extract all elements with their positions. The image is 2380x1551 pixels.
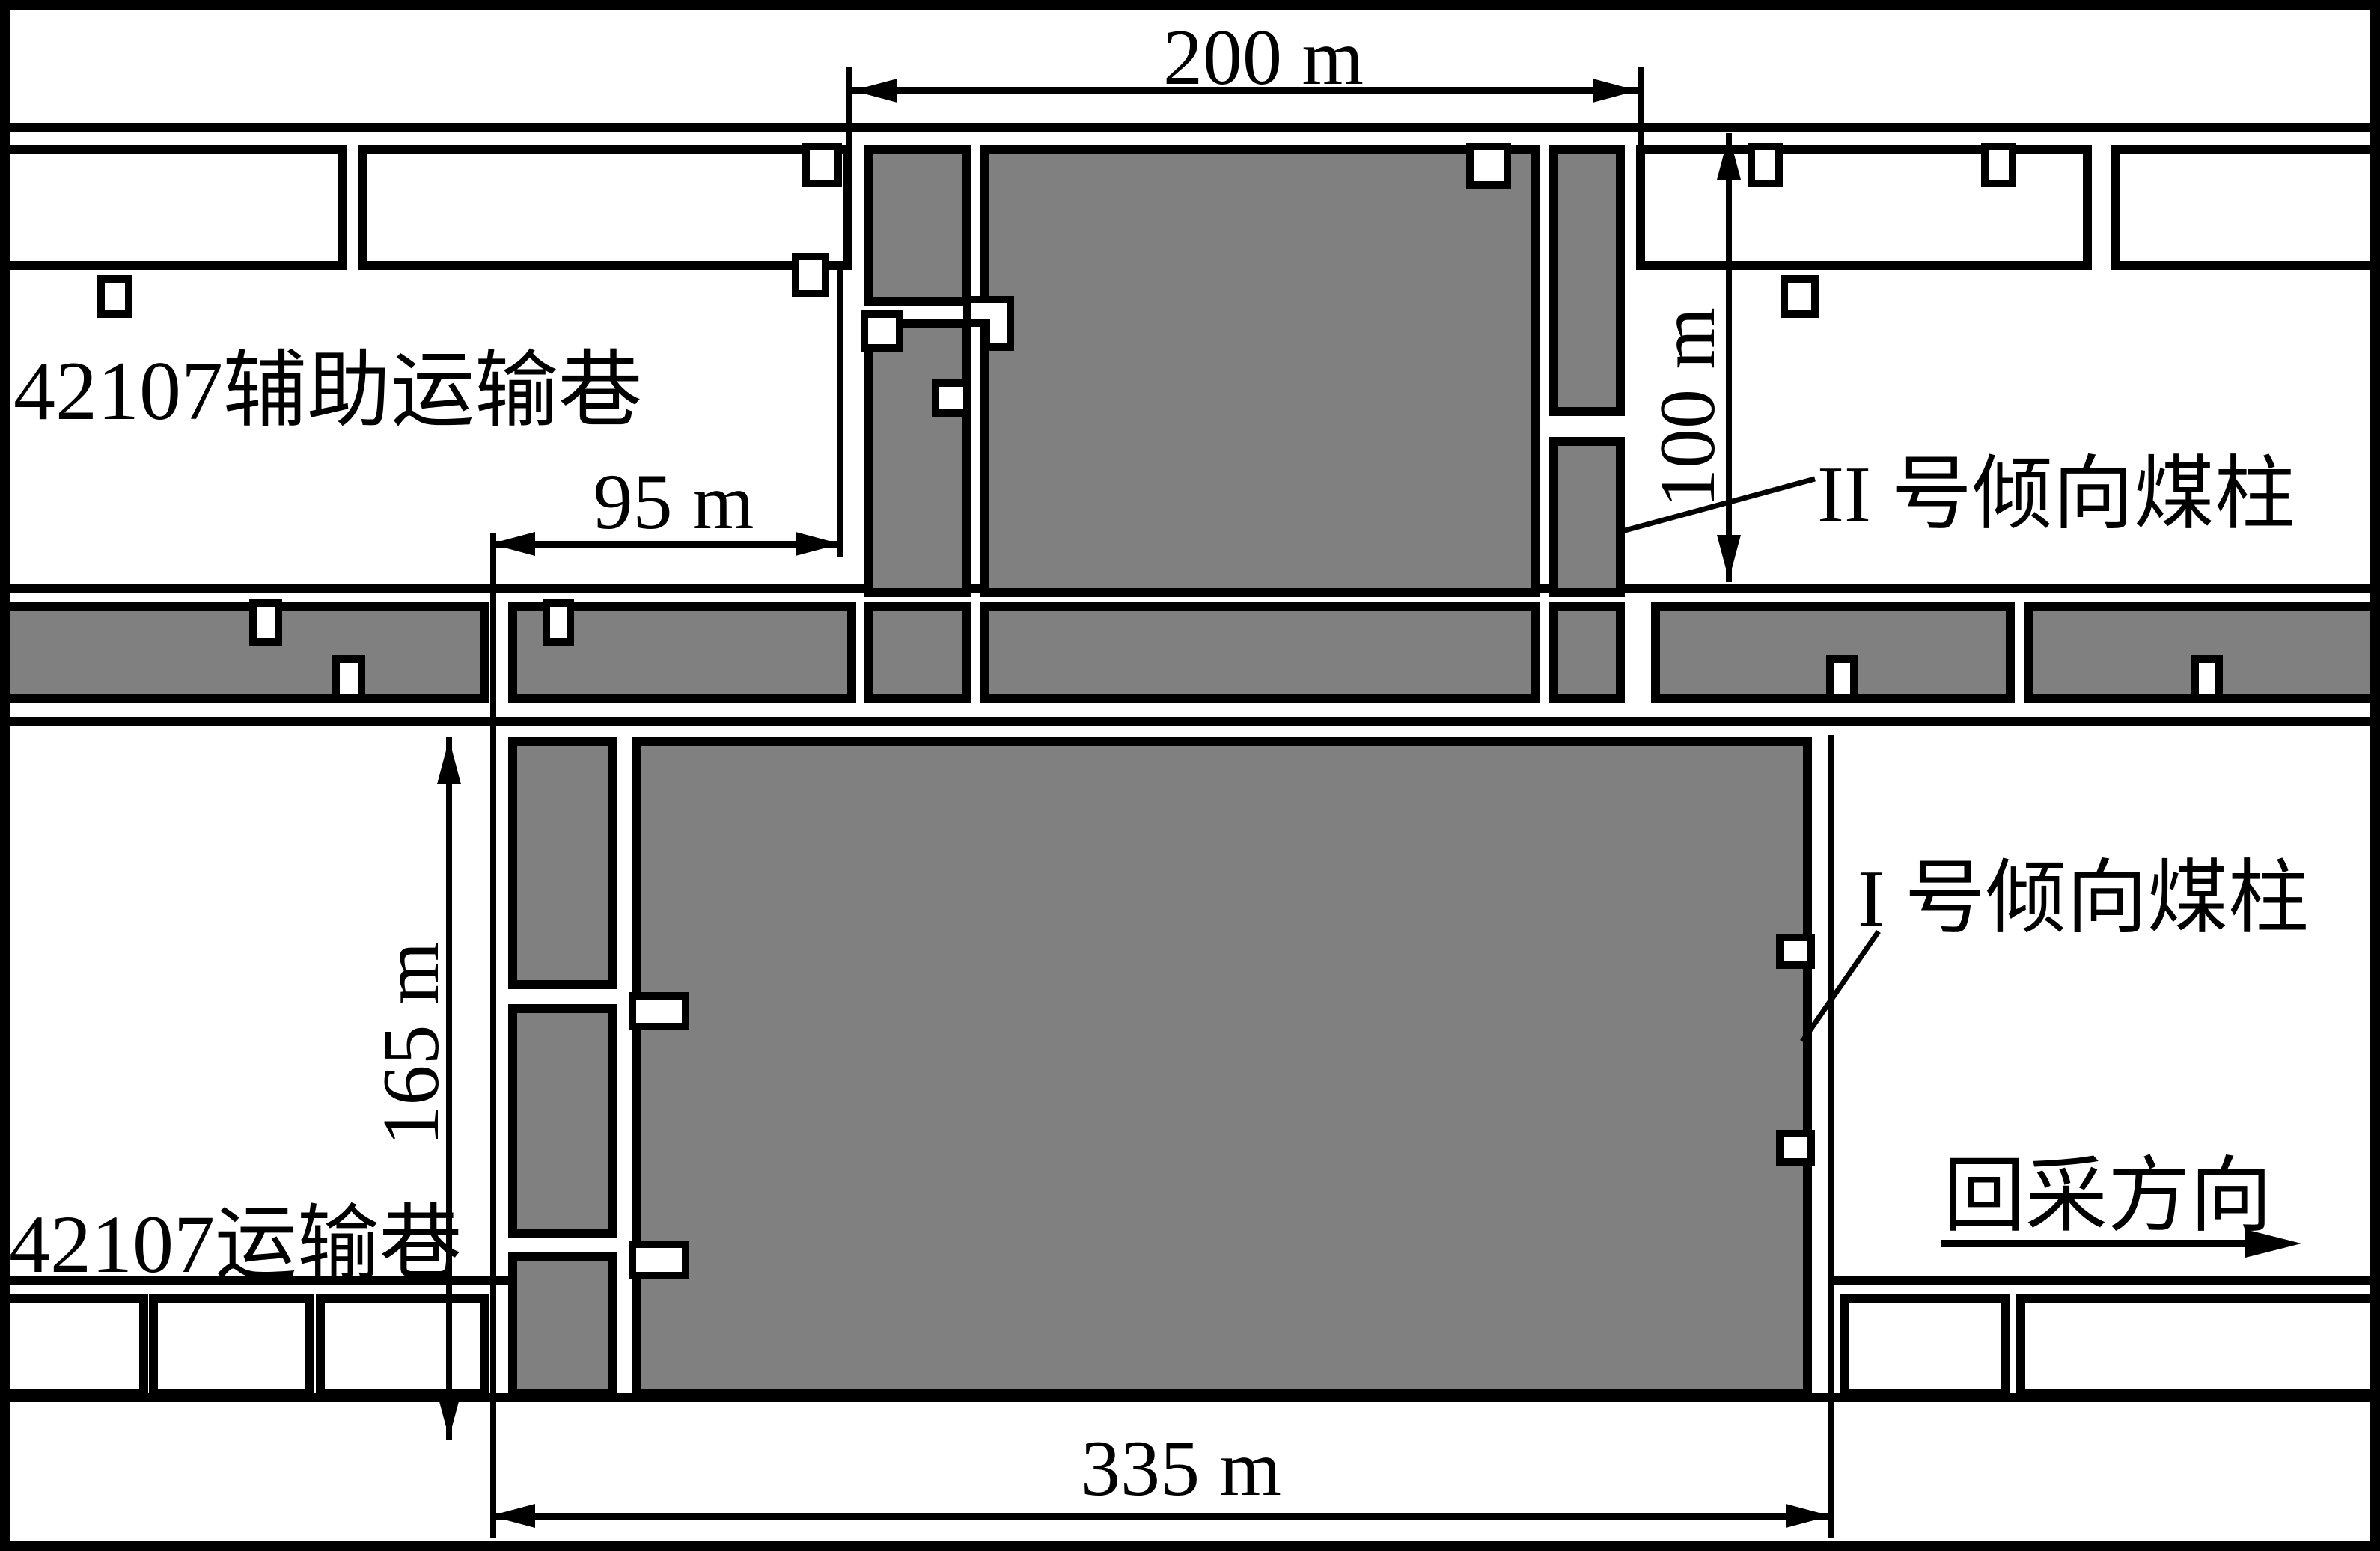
dim-text-335m: 335 m — [1081, 1425, 1281, 1512]
panel-bottom-left-3 — [320, 1299, 485, 1393]
panel-bottom-right-2 — [2021, 1299, 2374, 1393]
roadway-wall-line-mid — [0, 717, 2380, 726]
panel-bottom-right-1 — [1845, 1299, 2006, 1393]
coal-band-seg5 — [1554, 606, 1620, 698]
crosscut-notch — [1751, 147, 1779, 183]
crosscut-notch — [936, 383, 967, 413]
panel-top-right-2 — [2116, 150, 2374, 266]
pillar2-strip-right-seg2 — [1554, 441, 1620, 593]
crosscut-notch — [1470, 147, 1507, 185]
pillar2-main-block — [985, 150, 1536, 593]
crosscut-notch — [253, 603, 278, 642]
label-mining-direction: 回采方向 — [1943, 1151, 2272, 1242]
ext-line-200m-left — [846, 67, 852, 180]
pillar2-strip-right-seg1 — [1554, 150, 1620, 412]
dim-line-335m — [490, 1513, 1831, 1520]
crosscut-notch — [1780, 937, 1811, 965]
panel-top-left-2 — [362, 150, 847, 266]
workface-boundary-line — [1828, 735, 1834, 1538]
panel-top-left-1 — [6, 150, 343, 266]
pillar1-main-block — [636, 741, 1807, 1393]
ext-line-shared-left — [490, 533, 496, 1538]
pillar1-strip-seg3 — [513, 1257, 612, 1393]
label-pillar2: II 号倾向煤柱 — [1817, 450, 2295, 539]
label-transport-roadway: 42107运输巷 — [9, 1199, 462, 1290]
panel-bottom-left-1 — [6, 1299, 144, 1393]
ext-line-200m-right — [1638, 67, 1644, 157]
crosscut-notch — [796, 257, 826, 293]
crosscut-notch — [101, 279, 129, 314]
mine-layout-figure: 200 m 42107辅助运输巷 95 m 100 m II 号倾向煤柱 I 号… — [0, 0, 2380, 1551]
crosscut-notch — [2195, 659, 2219, 698]
panel-top-right-1 — [1641, 150, 2087, 266]
crosscut-notch — [864, 314, 900, 348]
label-aux-roadway: 42107辅助运输巷 — [13, 345, 642, 438]
coal-band-seg4 — [985, 606, 1536, 698]
crosscut-notch — [1780, 1134, 1811, 1162]
roadway-wall-line-transport-right — [1831, 1276, 2380, 1285]
pillar1-strip-seg2 — [513, 1009, 612, 1233]
crosscut-notch — [1830, 659, 1854, 698]
label-pillar1: I 号倾向煤柱 — [1858, 854, 2309, 943]
coal-band-seg1 — [6, 606, 485, 698]
dim-text-100m: 100 m — [1644, 308, 1731, 508]
pillar1-strip-seg1 — [513, 741, 612, 985]
crosscut-notch — [546, 603, 570, 642]
dim-text-200m: 200 m — [1163, 13, 1364, 101]
coal-band-seg3 — [869, 606, 967, 698]
panel-bottom-left-2 — [153, 1299, 309, 1393]
dim-text-165m: 165 m — [367, 941, 456, 1145]
pillar2-strip-left-seg1 — [869, 150, 967, 302]
dim-text-95m: 95 m — [594, 458, 754, 545]
crosscut-notch — [1985, 147, 2013, 183]
diagram-canvas: 200 m 42107辅助运输巷 95 m 100 m II 号倾向煤柱 I 号… — [0, 0, 2380, 1551]
crosscut-notch — [632, 1244, 686, 1276]
crosscut-notch — [336, 659, 361, 698]
crosscut-notch — [1784, 279, 1815, 314]
crosscut-notch — [806, 147, 838, 183]
roadway-wall-line-top — [0, 123, 2380, 132]
pillar2-strip-left-seg2 — [869, 323, 967, 593]
ext-line-95m-right — [837, 269, 843, 557]
crosscut-notch — [632, 996, 686, 1027]
